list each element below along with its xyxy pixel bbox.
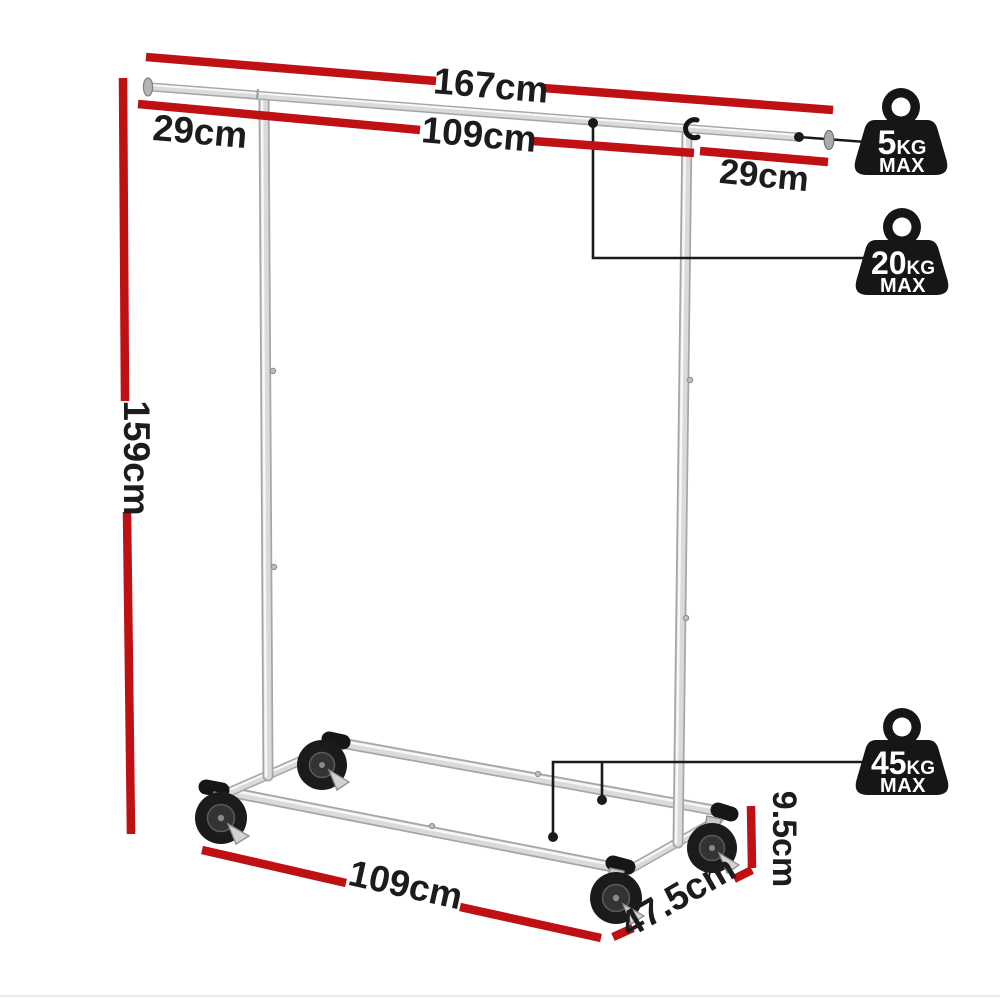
pole-joint-nub (683, 615, 688, 620)
label-left-extension: 29cm (151, 107, 249, 156)
pole-joint-nub (270, 368, 275, 373)
callout-connectors (548, 118, 866, 842)
pole-joint-nub (687, 377, 692, 382)
dim-line-base-left (202, 850, 346, 883)
label-total-width: 167cm (432, 60, 550, 110)
capacity-badge-20kg: 20KG MAX (856, 208, 949, 297)
badge-max: MAX (879, 155, 925, 177)
base-frame (206, 739, 731, 871)
badge-max: MAX (880, 775, 926, 797)
base-joint-nub (535, 771, 540, 776)
rail-end-cap-left (143, 78, 152, 96)
label-toprail-width: 109cm (420, 109, 538, 160)
dim-line-toprail-right (533, 141, 694, 153)
capacity-badge-5kg: 5KG MAX (855, 88, 948, 177)
diagram-canvas: 167cm 109cm 29cm 29cm 159cm 109cm 47.5cm… (0, 0, 1000, 1000)
clothes-rack (143, 78, 797, 924)
badge-max: MAX (880, 275, 926, 297)
label-caster-height: 9.5cm (765, 791, 803, 887)
product-dimension-diagram: 167cm 109cm 29cm 29cm 159cm 109cm 47.5cm… (0, 0, 1000, 1000)
pole-joint-nub (271, 564, 276, 569)
dim-line-caster-height (751, 806, 752, 868)
rail-end-cap-right (824, 131, 834, 150)
capacity-badge-45kg: 45KG MAX (856, 708, 949, 797)
label-right-extension: 29cm (718, 152, 811, 199)
base-joint-nub (429, 823, 434, 828)
dim-line-height-upper (123, 78, 125, 401)
upright-poles (262, 97, 693, 843)
dim-line-total-width-right (543, 88, 833, 110)
label-height: 159cm (116, 400, 157, 515)
dim-line-total-width-left (146, 57, 436, 81)
label-base-length: 109cm (345, 852, 466, 917)
dim-line-height-lower (127, 512, 131, 834)
dim-line-base-right (460, 907, 601, 938)
